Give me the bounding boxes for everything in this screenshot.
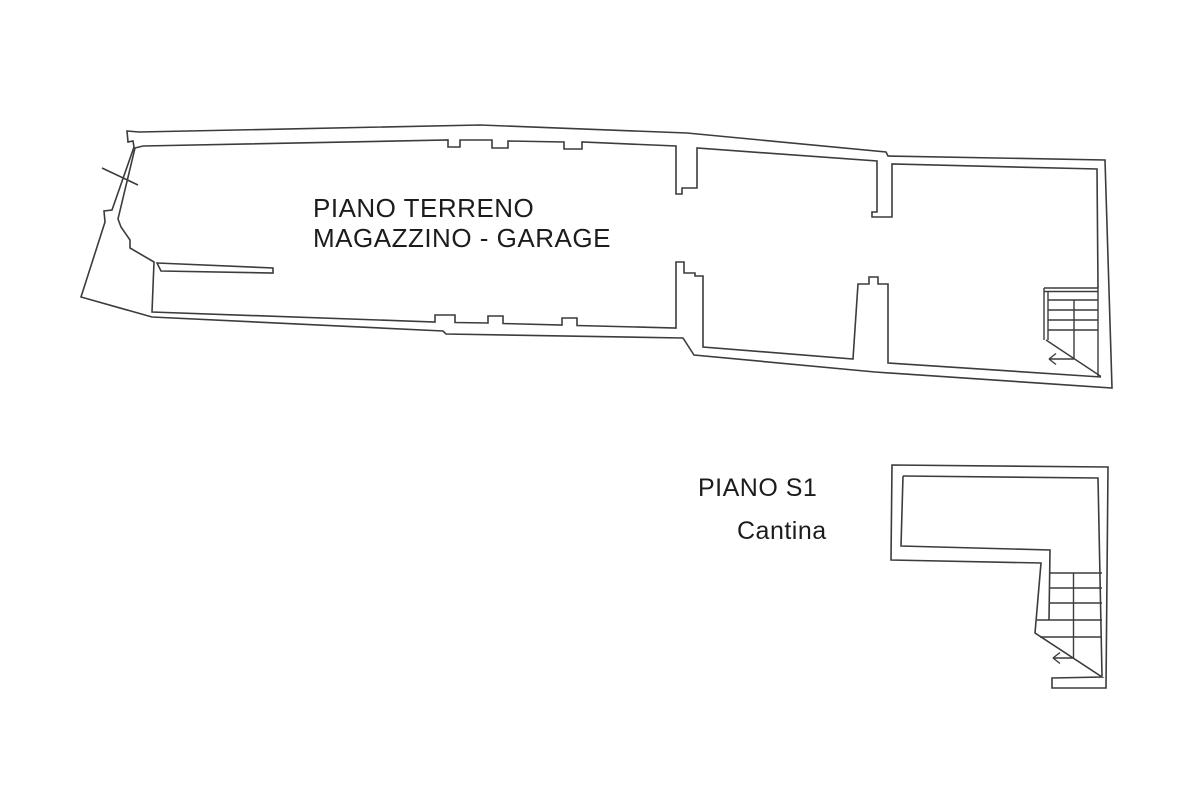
ground-floor-inner-wall-bottom xyxy=(118,146,1101,377)
basement-inner-wall-right xyxy=(903,476,1102,676)
ground-floor-title: PIANO TERRENO MAGAZZINO - GARAGE xyxy=(313,193,611,253)
section-tick xyxy=(102,168,138,185)
stairs-icon xyxy=(1037,573,1102,658)
interior-low-wall xyxy=(157,263,273,273)
ground-floor-title-line2: MAGAZZINO - GARAGE xyxy=(313,223,611,253)
direction-arrow-icon xyxy=(1053,653,1074,664)
ground-floor-outer-wall xyxy=(81,125,1112,388)
stairs-icon xyxy=(1044,288,1101,377)
ground-floor-inner-wall-top xyxy=(143,140,1098,288)
ground-floor-plan xyxy=(81,125,1112,388)
basement-outer-wall xyxy=(891,465,1108,688)
floor-plan-drawing xyxy=(0,0,1200,800)
basement-title: PIANO S1 xyxy=(698,474,817,503)
basement-inner-wall-left xyxy=(901,476,1050,620)
ground-floor-title-line1: PIANO TERRENO xyxy=(313,193,611,223)
basement-plan xyxy=(891,465,1108,688)
floor-plan-page: PIANO TERRENO MAGAZZINO - GARAGE PIANO S… xyxy=(0,0,1200,800)
direction-arrow-icon xyxy=(1049,354,1074,365)
basement-room-label: Cantina xyxy=(737,517,827,546)
